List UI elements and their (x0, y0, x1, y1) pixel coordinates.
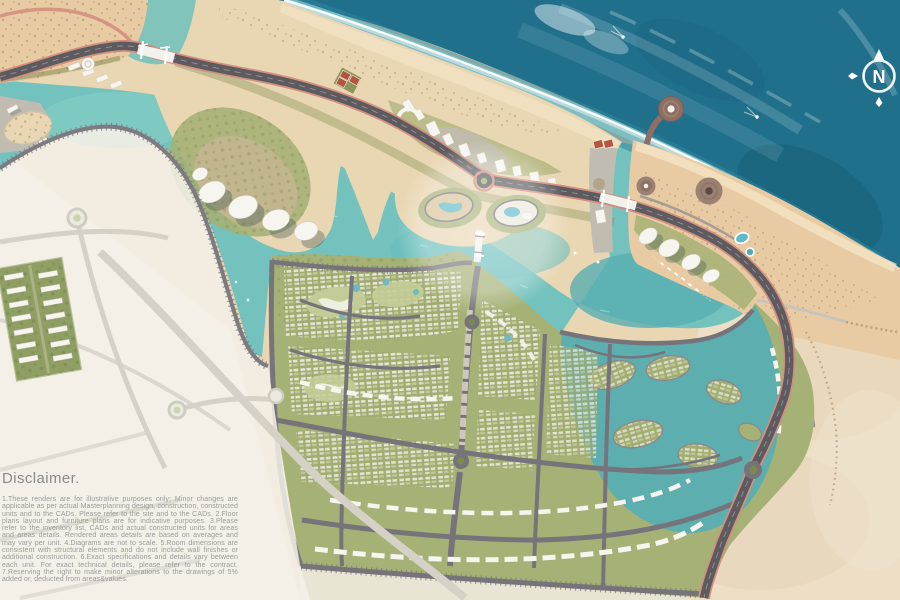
masterplan-map: N (0, 0, 900, 600)
southeast-roundabout (744, 461, 762, 479)
highlight-circle (397, 141, 571, 315)
compass-north-label: N (873, 67, 886, 87)
masterplan-screenshot: N Disclaimer. 1.These renders are for il… (0, 0, 900, 600)
